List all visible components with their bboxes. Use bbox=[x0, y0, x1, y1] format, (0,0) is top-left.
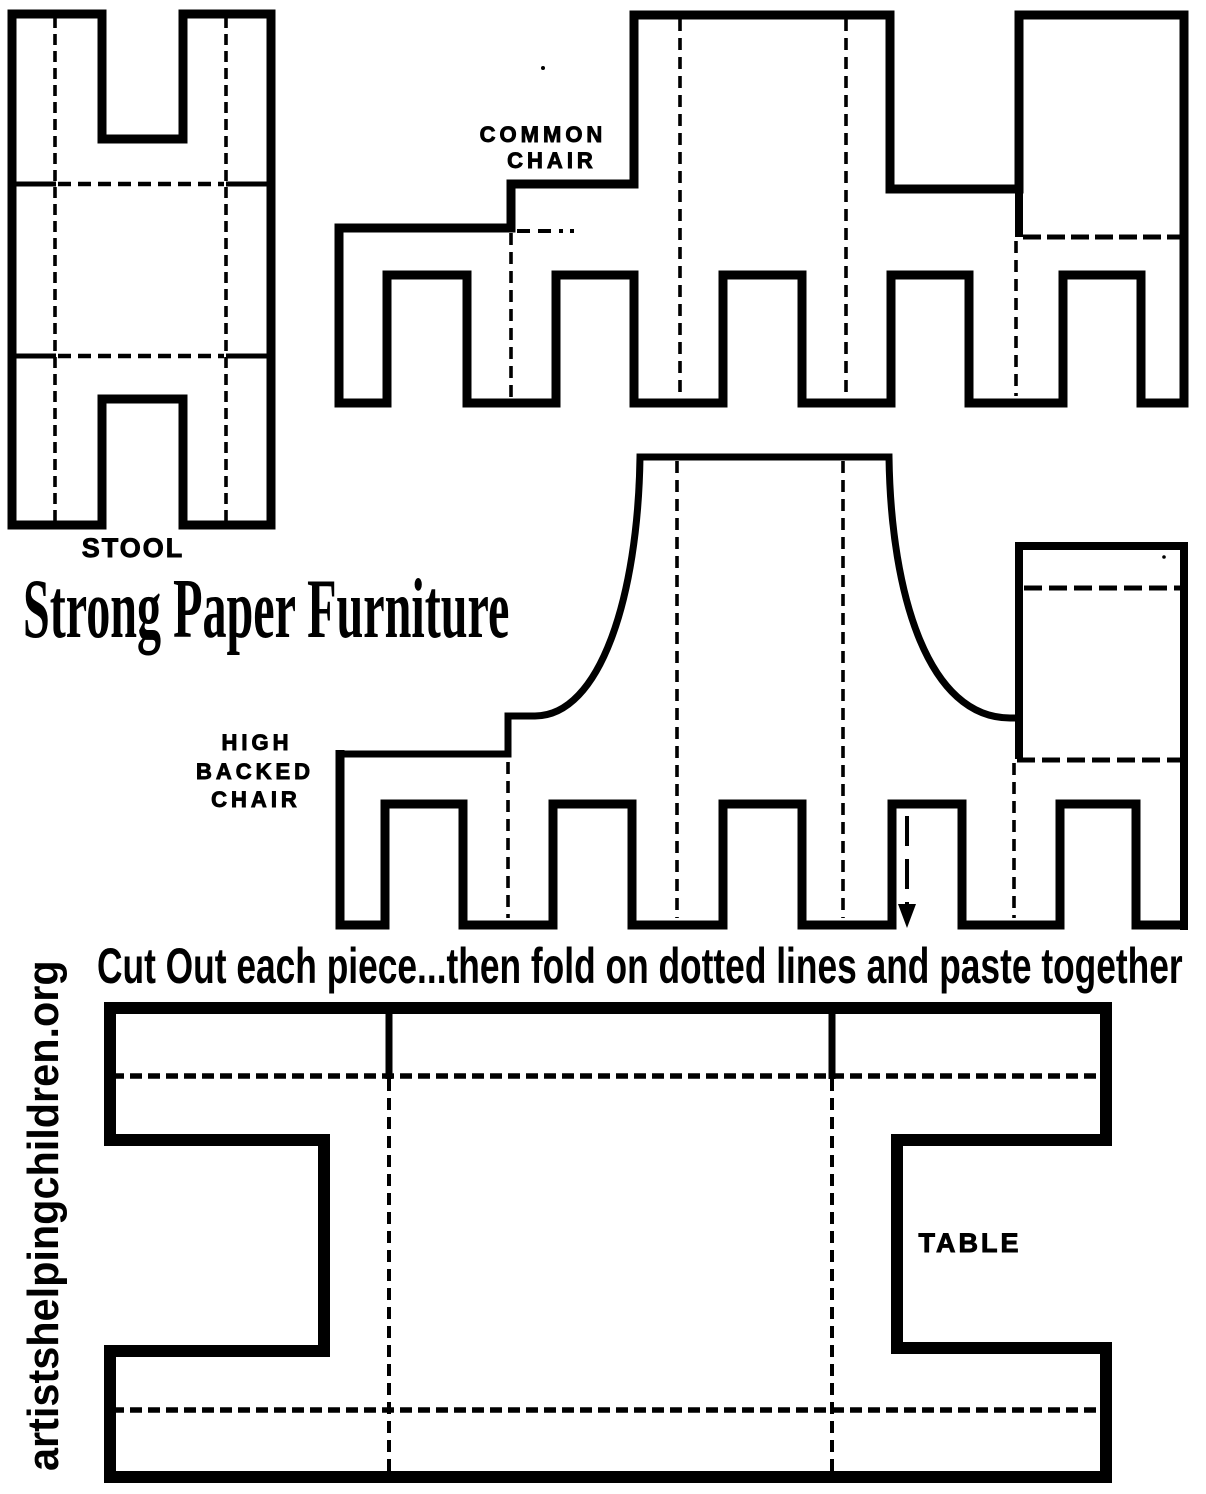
svg-text:CHAIR: CHAIR bbox=[211, 787, 301, 812]
svg-text:Cut Out each piece...then fold: Cut Out each piece...then fold on dotted… bbox=[97, 939, 1183, 994]
svg-text:Strong Paper Furniture: Strong Paper Furniture bbox=[23, 561, 509, 656]
svg-text:CHAIR: CHAIR bbox=[507, 148, 597, 173]
svg-text:COMMON: COMMON bbox=[480, 122, 607, 147]
svg-text:BACKED: BACKED bbox=[196, 759, 314, 784]
svg-text:HIGH: HIGH bbox=[222, 730, 293, 755]
svg-text:TABLE: TABLE bbox=[919, 1228, 1022, 1258]
svg-text:artistshelpingchildren.org: artistshelpingchildren.org bbox=[19, 960, 68, 1471]
svg-text:STOOL: STOOL bbox=[82, 533, 185, 563]
